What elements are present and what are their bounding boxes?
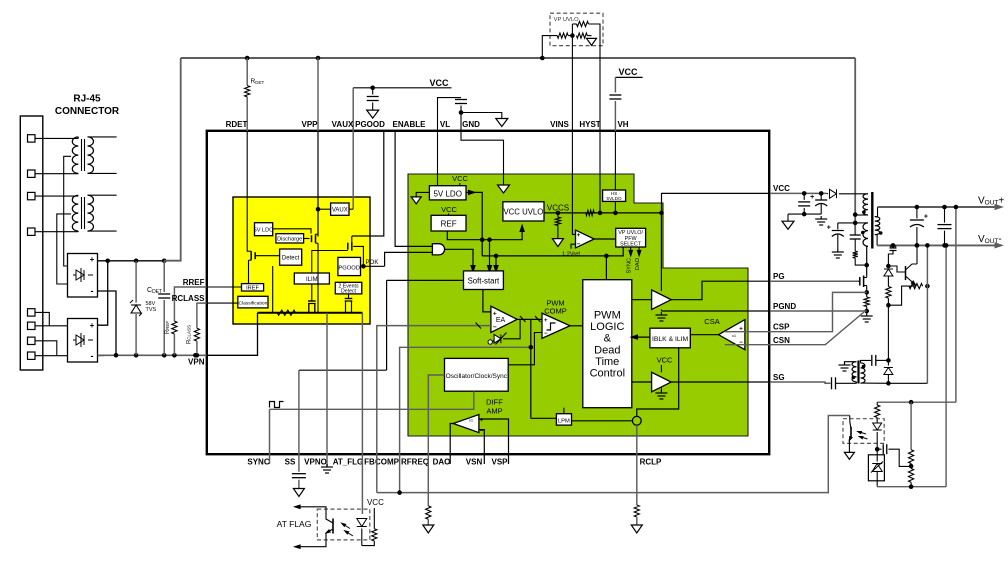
svg-text:SYNC: SYNC: [627, 258, 633, 274]
svg-text:Detect: Detect: [341, 289, 357, 295]
svg-text:+: +: [810, 194, 814, 201]
svg-text:VCC: VCC: [429, 78, 449, 88]
svg-text:Oscillator/Clock/Sync: Oscillator/Clock/Sync: [446, 373, 508, 380]
svg-text:CSA: CSA: [704, 317, 719, 326]
svg-text:VP UVLO: VP UVLO: [554, 17, 580, 23]
svg-text:DIFF: DIFF: [486, 398, 503, 407]
svg-text:CSN: CSN: [773, 336, 790, 345]
svg-text:+: +: [90, 321, 95, 330]
svg-text:PGND: PGND: [773, 302, 796, 311]
svg-text:RJ-45: RJ-45: [73, 94, 101, 105]
svg-text:VCC: VCC: [773, 184, 790, 193]
svg-text:−: −: [544, 331, 548, 337]
svg-text:VCC: VCC: [367, 498, 384, 507]
svg-text:POK: POK: [366, 260, 379, 266]
svg-text:1.2Vref: 1.2Vref: [562, 251, 580, 257]
svg-text:PGOOD: PGOOD: [355, 120, 385, 129]
svg-text:VAUX: VAUX: [332, 120, 354, 129]
svg-text:Control: Control: [590, 368, 625, 380]
svg-text:VSN: VSN: [466, 458, 483, 467]
svg-text:AT_FLG: AT_FLG: [333, 458, 364, 467]
svg-text:VCC: VCC: [452, 174, 468, 183]
svg-text:FB: FB: [364, 458, 375, 467]
svg-text:RCLP: RCLP: [640, 458, 662, 467]
svg-text:Detect: Detect: [282, 256, 300, 262]
svg-text:VPP: VPP: [301, 120, 318, 129]
svg-text:VCC: VCC: [657, 356, 673, 365]
svg-text:COMP: COMP: [375, 458, 400, 467]
svg-text:+: +: [90, 255, 95, 264]
svg-text:SELECT: SELECT: [620, 242, 642, 248]
svg-text:VPN: VPN: [188, 358, 205, 367]
svg-text:CSP: CSP: [773, 323, 790, 332]
svg-text:VL: VL: [440, 120, 450, 129]
svg-text:5V LDO: 5V LDO: [433, 189, 461, 198]
svg-text:CDET: CDET: [147, 287, 162, 295]
svg-text:+: +: [827, 225, 831, 232]
svg-text:RREF: RREF: [183, 278, 205, 287]
svg-text:COMP: COMP: [544, 306, 567, 315]
svg-text:PGOOD: PGOOD: [338, 266, 360, 272]
svg-text:VCC: VCC: [618, 67, 638, 77]
svg-text:VCC: VCC: [441, 205, 457, 214]
svg-text:LOGIC: LOGIC: [590, 321, 624, 333]
svg-text:−: −: [480, 428, 484, 434]
svg-text:HYST: HYST: [579, 120, 600, 129]
svg-text:−: −: [577, 241, 581, 248]
svg-text:Time: Time: [595, 356, 619, 368]
svg-text:RDET: RDET: [226, 120, 248, 129]
svg-text:PWM: PWM: [594, 310, 621, 322]
svg-text:PG: PG: [773, 272, 785, 281]
svg-text:RFREQ: RFREQ: [401, 458, 429, 467]
svg-text:Soft-start: Soft-start: [468, 277, 500, 286]
svg-text:-: -: [91, 286, 94, 296]
svg-text:&: &: [604, 333, 612, 345]
svg-text:VCC UVLO: VCC UVLO: [503, 208, 543, 217]
svg-text:GND: GND: [462, 120, 480, 129]
svg-text:CONNECTOR: CONNECTOR: [55, 106, 120, 117]
svg-text:EA: EA: [496, 317, 506, 324]
svg-text:ILIM: ILIM: [306, 277, 318, 283]
svg-text:AT FLAG: AT FLAG: [277, 519, 312, 529]
svg-text:Dead: Dead: [594, 344, 620, 356]
svg-text:VSP: VSP: [491, 458, 508, 467]
svg-text:Discharge: Discharge: [277, 237, 302, 243]
svg-text:SYNC: SYNC: [247, 458, 269, 467]
svg-text:VAUX: VAUX: [332, 208, 348, 214]
svg-text:+: +: [577, 232, 581, 239]
svg-text:SS: SS: [285, 458, 296, 467]
svg-text:VINS: VINS: [550, 120, 569, 129]
svg-text:-: -: [91, 351, 94, 361]
svg-text:TVS: TVS: [146, 307, 157, 313]
svg-text:IBLK & ILIM: IBLK & ILIM: [652, 336, 689, 343]
svg-text:+: +: [493, 311, 497, 318]
svg-text:DAO: DAO: [433, 458, 451, 467]
svg-text:+: +: [924, 214, 928, 221]
svg-text:IREF: IREF: [246, 286, 259, 292]
svg-text:RCLASS: RCLASS: [172, 294, 206, 303]
svg-text:Classification: Classification: [238, 300, 267, 306]
svg-text:LPM: LPM: [558, 418, 570, 424]
svg-text:AMP: AMP: [486, 407, 502, 416]
svg-text:SG: SG: [773, 373, 785, 382]
svg-text:VPNO: VPNO: [304, 458, 327, 467]
svg-text:5VLDO: 5VLDO: [607, 196, 622, 201]
svg-text:+: +: [544, 318, 548, 324]
svg-text:RDET: RDET: [251, 78, 265, 85]
svg-text:DAO: DAO: [635, 257, 641, 270]
svg-text:+: +: [480, 418, 484, 424]
svg-text:REF: REF: [441, 219, 457, 228]
svg-text:VH: VH: [617, 120, 628, 129]
svg-text:ENABLE: ENABLE: [393, 120, 427, 129]
svg-text:−: −: [493, 324, 497, 331]
svg-text:5V LDO: 5V LDO: [254, 228, 275, 234]
